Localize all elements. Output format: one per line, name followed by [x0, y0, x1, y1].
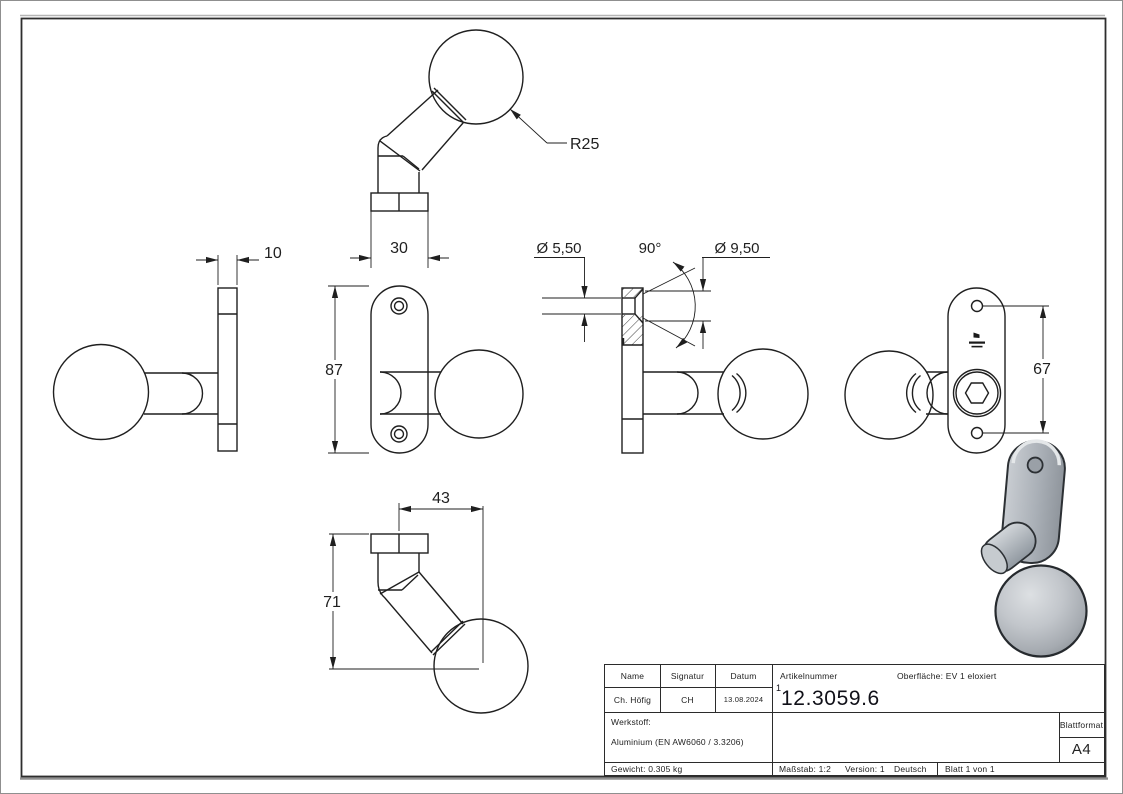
article-number-value: 12.3059.6	[781, 687, 880, 710]
view-front: 87	[321, 286, 523, 453]
hex-socket	[966, 383, 989, 403]
sprache-value: Deutsch	[894, 762, 934, 775]
plate-outline	[948, 288, 1005, 453]
article-number: 112.3059.6	[776, 683, 880, 711]
dimension-label-projection-height: 71	[323, 594, 341, 611]
titleblock-oberflaeche: Oberfläche: EV 1 eloxiert	[897, 665, 1102, 687]
dim-hole-5-50	[534, 258, 621, 343]
view-top-knob: 30 R25	[350, 30, 599, 268]
plate-section-outline	[622, 288, 643, 453]
version-value: Version: 1	[845, 762, 891, 775]
render-screw-hole	[1027, 457, 1043, 473]
dimension-label-countersink-diameter: Ø 9,50	[714, 240, 759, 257]
dim-71	[329, 534, 479, 669]
drawing-sheet: 30 R25 10 87	[0, 0, 1123, 794]
view-back: 67	[845, 288, 1057, 453]
embossed-logo-mark	[622, 338, 625, 345]
blatt-value: Blatt 1 von 1	[945, 762, 1065, 775]
view-3d-render	[976, 439, 1087, 657]
title-block: Name Signatur Datum Artikelnummer Oberfl…	[604, 664, 1105, 776]
view-section: Ø 5,50 90° Ø 9,50	[534, 240, 808, 453]
titleblock-signatur-label: Signatur	[660, 665, 715, 687]
ball-outline	[429, 30, 523, 124]
dim-r25-leader	[510, 109, 567, 143]
dimension-label-ball-radius: R25	[570, 136, 599, 153]
ball-outline	[435, 350, 523, 438]
dimension-label-projection-width: 43	[432, 490, 450, 507]
dimension-label-hole-spacing: 67	[1033, 361, 1051, 378]
dimension-label-plate-thickness: 10	[264, 245, 282, 262]
blattformat-value: A4	[1059, 737, 1104, 762]
hex-socket-ring	[954, 370, 1001, 417]
titleblock-name-label: Name	[605, 665, 660, 687]
dimension-label-hole-diameter: Ø 5,50	[536, 240, 581, 257]
ball-outline	[718, 349, 808, 439]
ball-outline	[54, 345, 149, 440]
dim-angle-90	[643, 262, 695, 348]
gewicht-value: Gewicht: 0.305 kg	[611, 762, 769, 775]
view-side-left: 10	[54, 245, 282, 451]
massstab-value: Maßstab: 1:2	[779, 762, 841, 775]
render-ball	[996, 566, 1087, 657]
titleblock-name-value: Ch. Höfig	[605, 687, 660, 712]
blattformat-label: Blattformat	[1059, 712, 1104, 737]
dim-countersink-9-50	[645, 258, 770, 350]
titleblock-signatur-value: CH	[660, 687, 715, 712]
ball-outline	[434, 619, 528, 713]
brand-logo-mark	[969, 333, 985, 348]
dimension-label-countersink-angle: 90°	[639, 240, 662, 257]
titleblock-datum-label: Datum	[715, 665, 772, 687]
titleblock-datum-value: 13.08.2024	[715, 687, 772, 712]
dim-43	[399, 503, 483, 663]
dim-10	[196, 255, 259, 285]
werkstoff-label: Werkstoff:	[611, 715, 771, 729]
view-bottom-knob: 43 71	[319, 490, 528, 713]
werkstoff-value: Aluminium (EN AW6060 / 3.3206)	[611, 735, 871, 749]
dimension-label-plate-width: 30	[390, 240, 408, 257]
ball-outline	[845, 351, 933, 439]
dimension-label-plate-height: 87	[325, 362, 343, 379]
